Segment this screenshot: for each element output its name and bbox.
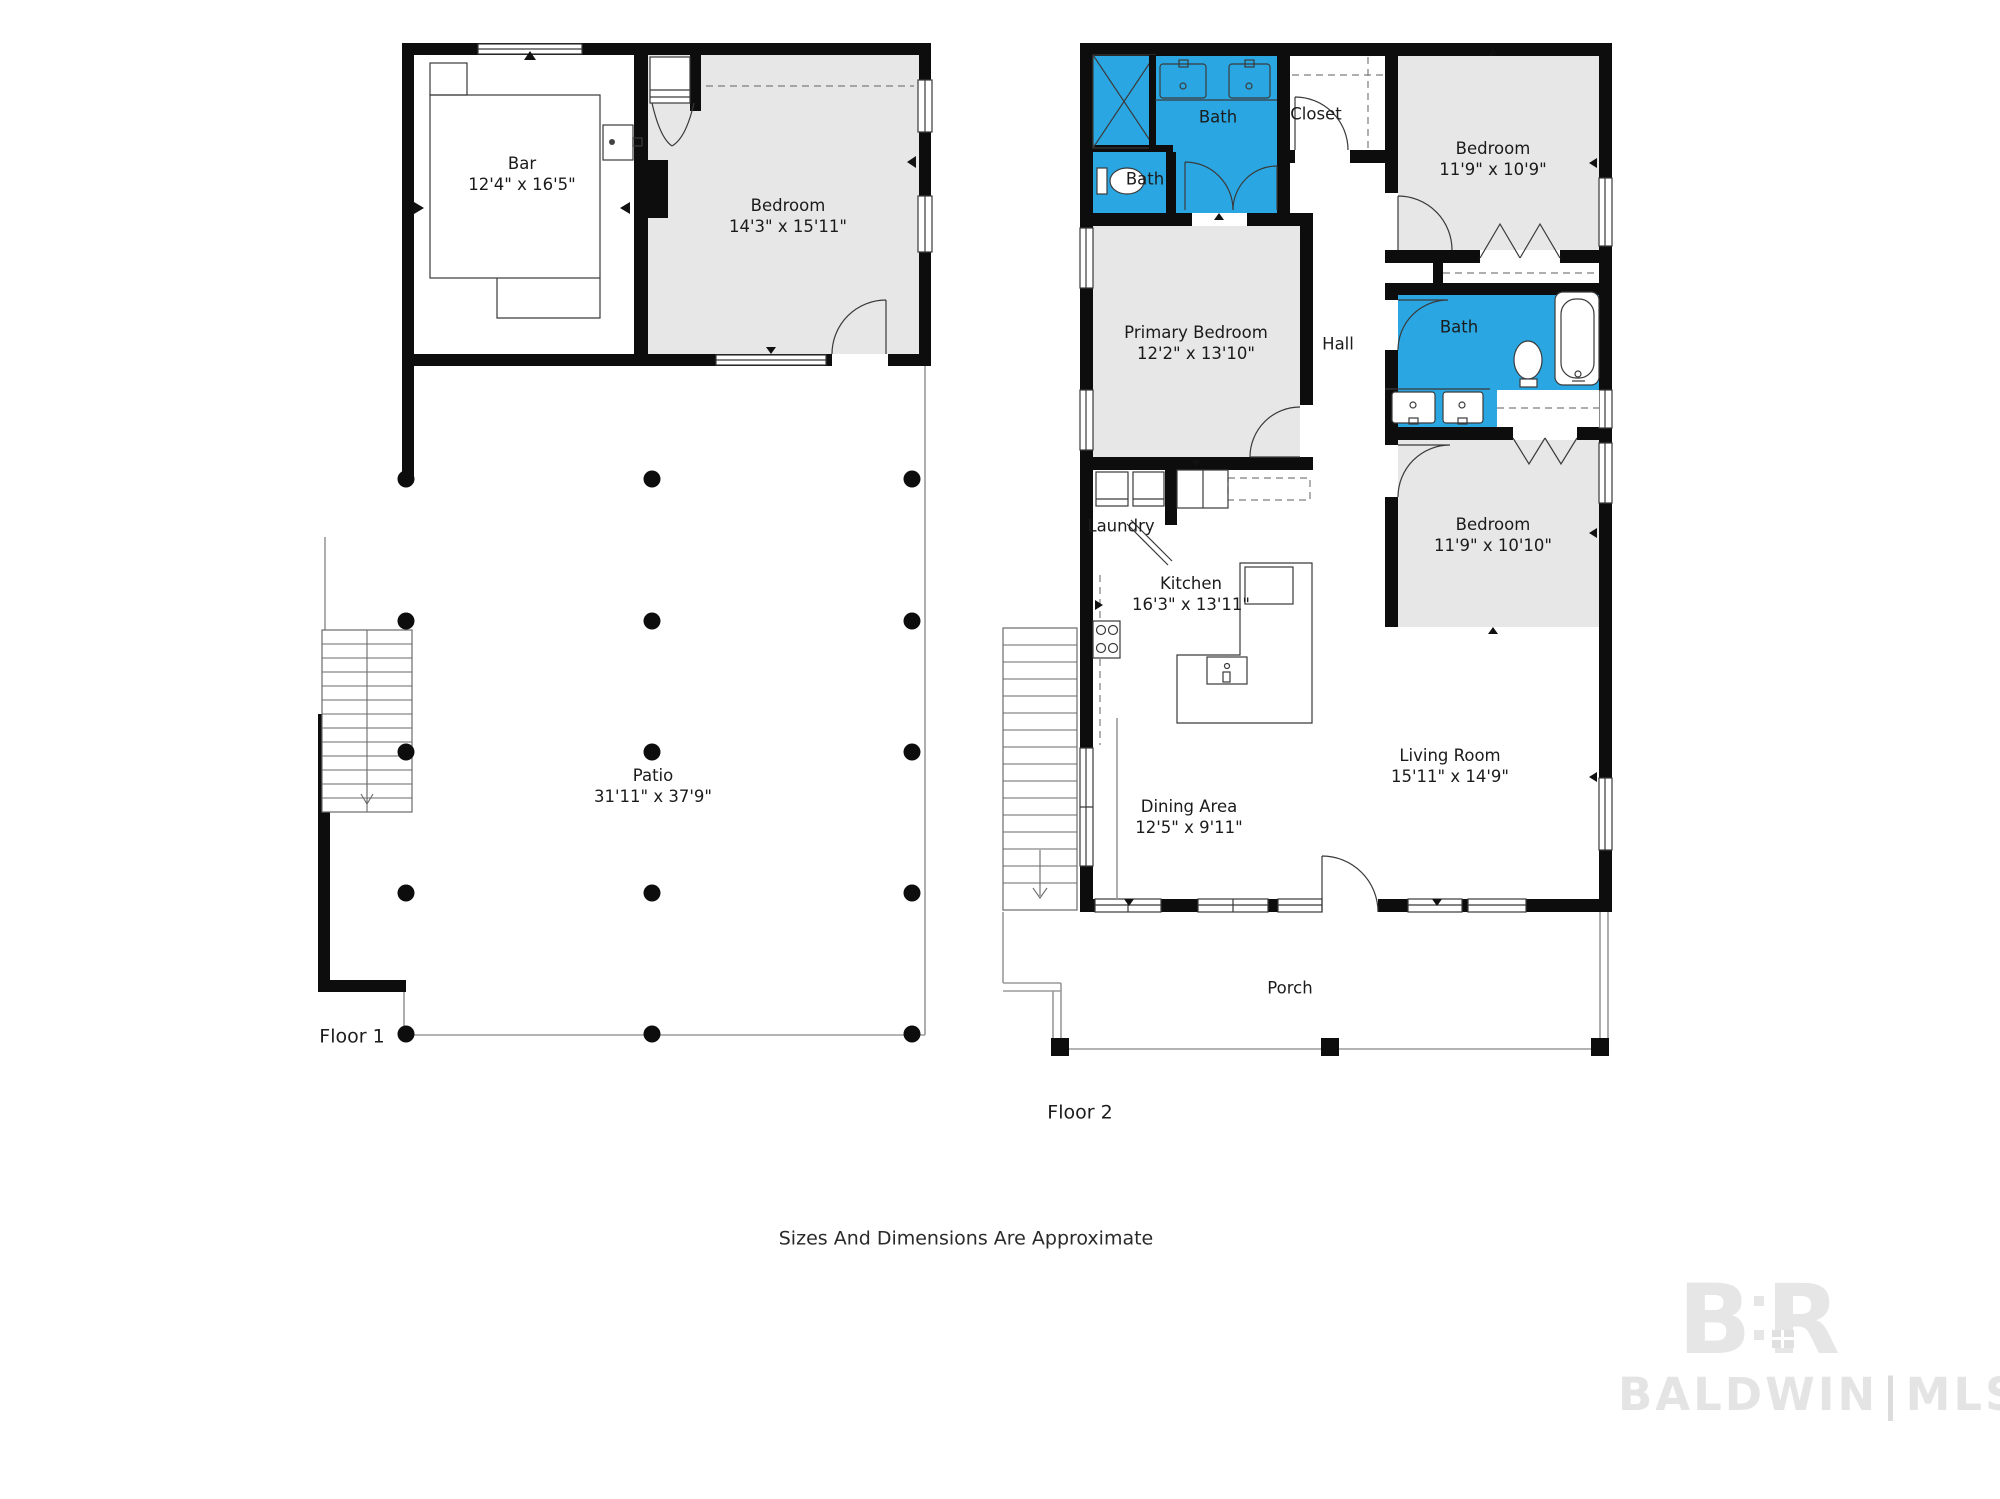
logo-letter-r: R <box>1766 1264 1841 1376</box>
room-label-primary-bedroom: Primary Bedroom 12'2" x 13'10" <box>1124 322 1268 364</box>
room-label-bath-small: Bath <box>1126 169 1164 190</box>
bathtub-icon <box>1555 292 1599 385</box>
stairs-down <box>322 630 412 812</box>
washer-dryer-icons <box>1096 472 1164 506</box>
room-label-bedroom-top: Bedroom 11'9" x 10'9" <box>1439 138 1547 180</box>
room-label-closet: Closet <box>1290 104 1341 125</box>
baldwin-mls-watermark: BALDWIN|MLS <box>1618 1368 2000 1421</box>
room-label-laundry: Laundry <box>1087 516 1154 537</box>
porch-posts <box>1051 1038 1609 1056</box>
porch-boundary <box>1003 718 1608 1049</box>
floor1-plan <box>318 43 932 1043</box>
floor2-label: Floor 2 <box>1047 1103 1112 1124</box>
room-label-living-room: Living Room 15'11" x 14'9" <box>1391 745 1509 787</box>
room-label-kitchen: Kitchen 16'3" x 13'11" <box>1132 573 1250 615</box>
baldwin-mls-logo: BR <box>1678 1272 1841 1368</box>
patio-posts <box>398 471 921 1043</box>
kitchen-counter <box>1177 470 1228 508</box>
floor1-label: Floor 1 <box>319 1027 384 1048</box>
disclaimer-text: Sizes And Dimensions Are Approximate <box>779 1229 1154 1250</box>
room-label-bedroom-mid: Bedroom 11'9" x 10'10" <box>1434 514 1552 556</box>
stove-icon <box>1093 621 1120 658</box>
stairs-down-floor2 <box>1003 628 1077 910</box>
room-label-bath-primary: Bath <box>1199 107 1237 128</box>
watermark-brand: BALDWIN <box>1618 1368 1878 1421</box>
logo-window-icon <box>1772 1330 1794 1348</box>
logo-letter-b: B <box>1678 1264 1752 1376</box>
room-label-porch: Porch <box>1267 978 1312 999</box>
logo-dots-icon <box>1754 1296 1764 1340</box>
room-label-bedroom1: Bedroom 14'3" x 15'11" <box>729 195 847 237</box>
watermark-suffix: MLS <box>1906 1368 2000 1421</box>
room-label-hall: Hall <box>1322 334 1354 355</box>
room-label-patio: Patio 31'11" x 37'9" <box>594 765 712 807</box>
watermark-divider: | <box>1878 1368 1905 1421</box>
room-label-bath-hall: Bath <box>1440 317 1478 338</box>
floorplan-canvas: Bar 12'4" x 16'5" Bedroom 14'3" x 15'11"… <box>0 0 2000 1499</box>
room-label-dining-area: Dining Area 12'5" x 9'11" <box>1135 796 1243 838</box>
room-label-bar: Bar 12'4" x 16'5" <box>468 153 576 195</box>
